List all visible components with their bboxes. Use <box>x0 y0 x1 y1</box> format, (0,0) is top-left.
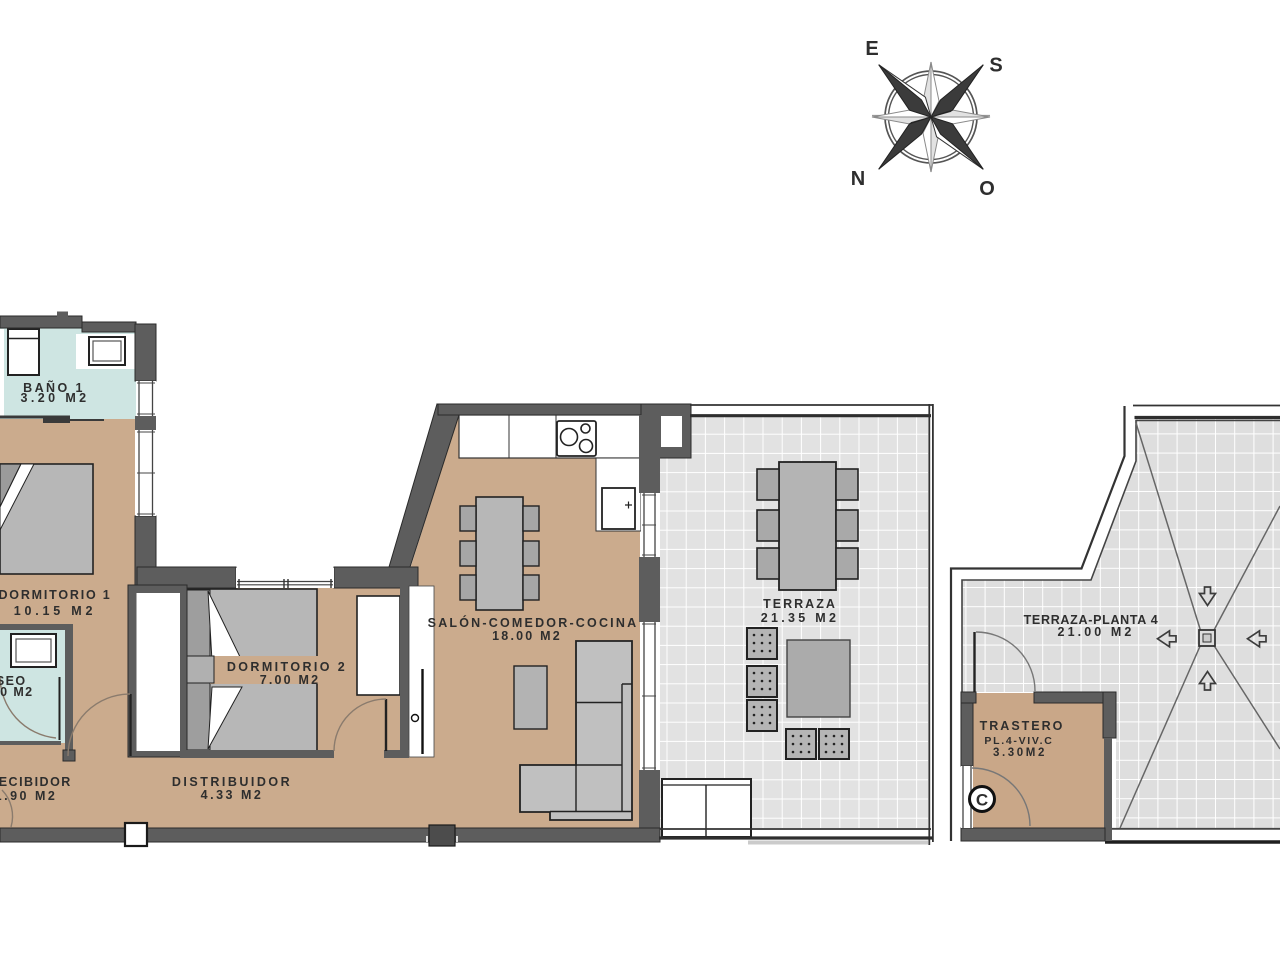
svg-text:4.33 M2: 4.33 M2 <box>201 788 264 802</box>
svg-text:PL.4-VIV.C: PL.4-VIV.C <box>984 735 1053 747</box>
svg-text:E: E <box>865 38 878 60</box>
svg-text:N: N <box>851 168 865 190</box>
svg-text:C: C <box>976 791 988 810</box>
svg-text:21.35 M2: 21.35 M2 <box>761 611 840 625</box>
svg-text:S: S <box>989 55 1002 77</box>
svg-text:SALÓN-COMEDOR-COCINA: SALÓN-COMEDOR-COCINA <box>428 615 639 630</box>
svg-text:TERRAZA: TERRAZA <box>763 597 837 611</box>
svg-text:DISTRIBUIDOR: DISTRIBUIDOR <box>172 775 292 789</box>
svg-text:18.00 M2: 18.00 M2 <box>492 629 562 643</box>
svg-text:DORMITORIO 2: DORMITORIO 2 <box>227 660 347 674</box>
svg-text:1.90 M2: 1.90 M2 <box>0 789 57 803</box>
svg-text:1.50 M2: 1.50 M2 <box>0 685 33 699</box>
svg-text:7.00 M2: 7.00 M2 <box>260 673 321 687</box>
svg-text:10.15 M2: 10.15 M2 <box>14 604 97 618</box>
svg-text:3.30M2: 3.30M2 <box>993 747 1047 759</box>
svg-text:RECIBIDOR: RECIBIDOR <box>0 775 72 789</box>
svg-text:3.20 M2: 3.20 M2 <box>21 391 90 405</box>
svg-text:21.00 M2: 21.00 M2 <box>1058 625 1135 639</box>
svg-text:TRASTERO: TRASTERO <box>980 719 1065 733</box>
svg-text:DORMITORIO 1: DORMITORIO 1 <box>0 588 112 602</box>
svg-text:O: O <box>979 178 995 200</box>
